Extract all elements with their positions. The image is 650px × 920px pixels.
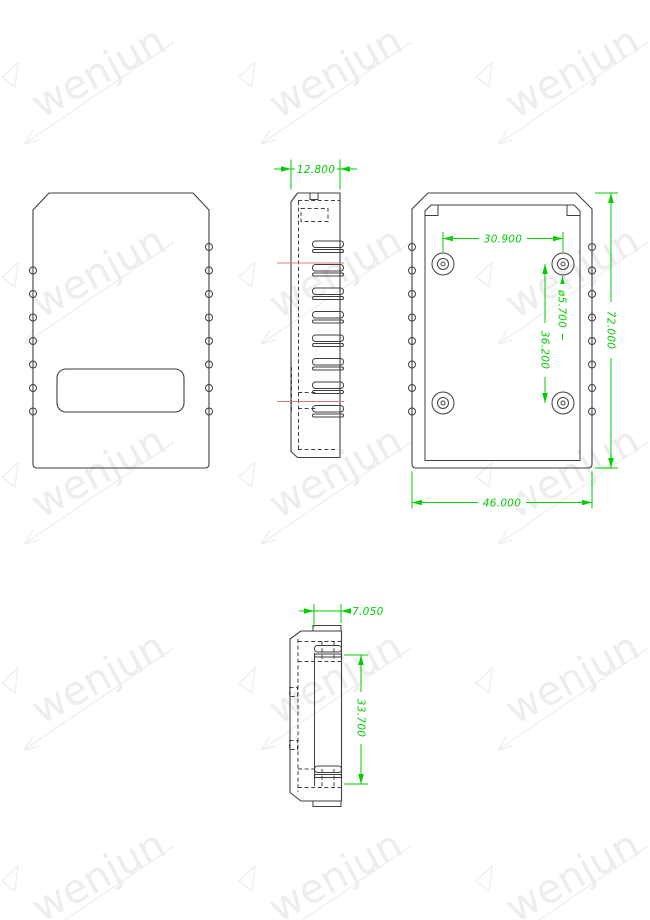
watermark-unit: wenjun xyxy=(476,17,648,144)
cover-top-tab xyxy=(313,626,341,632)
dim-tab-offset-label: 7.050 xyxy=(352,606,384,618)
watermark-text: wenjun xyxy=(24,217,173,327)
watermark-triangle-icon xyxy=(476,262,492,287)
watermark-unit: wenjun xyxy=(2,623,174,750)
watermark-unit: wenjun xyxy=(239,821,411,920)
watermark-triangle-icon xyxy=(476,866,492,891)
watermark-triangle-icon xyxy=(476,62,492,87)
watermark-text: wenjun xyxy=(261,821,410,920)
screw-boss xyxy=(432,392,454,414)
dim-side-width-label: 12.800 xyxy=(297,164,336,176)
side-outline xyxy=(291,193,340,458)
watermark-unit: wenjun xyxy=(2,17,174,144)
front-window-slot xyxy=(57,369,184,412)
watermark-triangle-icon xyxy=(2,866,18,891)
watermark-text: wenjun xyxy=(261,17,410,127)
watermark-text: wenjun xyxy=(261,623,410,733)
watermark-text: wenjun xyxy=(24,17,173,127)
watermark-triangle-icon xyxy=(2,668,18,693)
watermark-text: wenjun xyxy=(498,17,647,127)
watermark-unit: wenjun xyxy=(239,417,411,544)
dim-hole-diameter-label: ø5.700 xyxy=(556,289,568,328)
watermark-triangle-icon xyxy=(239,462,255,487)
watermark-triangle-icon xyxy=(239,262,255,287)
watermark-unit: wenjun xyxy=(2,217,174,344)
dim-hole-spacing-y-label: 36.200 xyxy=(539,331,551,370)
cad-sheet: wenjunwenjunwenjunwenjunwenjunwenjunwenj… xyxy=(0,0,650,920)
dim-opening-height-label: 33.700 xyxy=(355,699,367,738)
watermark-text: wenjun xyxy=(261,417,410,527)
watermark-text: wenjun xyxy=(24,821,173,920)
watermark-unit: wenjun xyxy=(476,623,648,750)
screw-boss xyxy=(552,392,574,414)
watermark-unit: wenjun xyxy=(239,623,411,750)
dim-hole-spacing-x-label: 30.900 xyxy=(484,233,523,245)
dim-body-height-label: 72.000 xyxy=(605,311,617,350)
watermark-text: wenjun xyxy=(24,623,173,733)
back-tab-right xyxy=(567,205,580,216)
dim-side-width: 12.800 xyxy=(274,160,357,190)
dim-body-width-label: 46.000 xyxy=(483,497,522,509)
cover-bottom-tab xyxy=(313,801,341,807)
watermark-unit: wenjun xyxy=(476,417,648,544)
dim-hole-diameter: ø5.700 xyxy=(556,276,569,340)
watermark-text: wenjun xyxy=(498,623,647,733)
watermark-triangle-icon xyxy=(239,668,255,693)
watermark-unit: wenjun xyxy=(2,417,174,544)
watermark-triangle-icon xyxy=(476,668,492,693)
watermark-text: wenjun xyxy=(498,821,647,920)
watermark-triangle-icon xyxy=(239,62,255,87)
watermark-layer: wenjunwenjunwenjunwenjunwenjunwenjunwenj… xyxy=(2,17,648,920)
screw-boss xyxy=(432,253,454,275)
watermark-unit: wenjun xyxy=(239,217,411,344)
side-top-notch xyxy=(310,193,318,200)
watermark-unit: wenjun xyxy=(476,821,648,920)
watermark-triangle-icon xyxy=(2,262,18,287)
watermark-triangle-icon xyxy=(476,462,492,487)
back-tab-left xyxy=(425,205,438,216)
watermark-unit: wenjun xyxy=(239,17,411,144)
dim-tab-offset: 7.050 xyxy=(299,604,391,627)
watermark-triangle-icon xyxy=(2,462,18,487)
dim-hole-spacing-x: 30.900 xyxy=(443,232,563,252)
watermark-unit: wenjun xyxy=(2,821,174,920)
watermark-text: wenjun xyxy=(24,417,173,527)
watermark-text: wenjun xyxy=(498,417,647,527)
watermark-triangle-icon xyxy=(2,62,18,87)
watermark-triangle-icon xyxy=(239,866,255,891)
side-hidden-lines xyxy=(292,201,341,451)
cad-drawing: wenjunwenjunwenjunwenjunwenjunwenjunwenj… xyxy=(0,0,650,920)
